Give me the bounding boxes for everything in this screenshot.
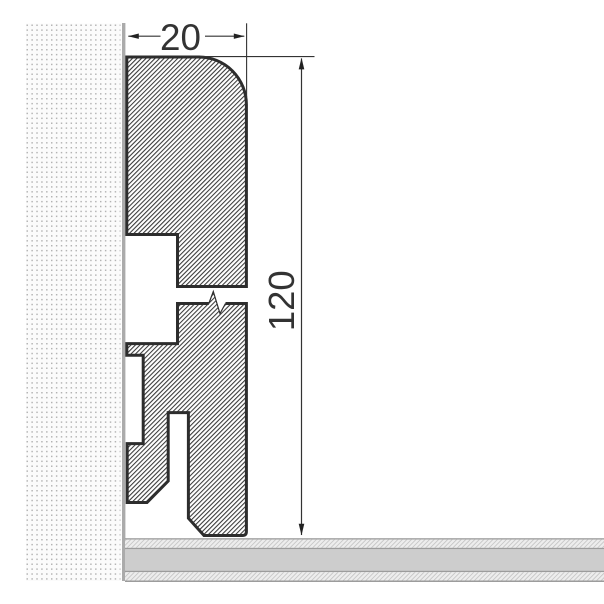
svg-text:20: 20 bbox=[160, 17, 201, 58]
svg-text:120: 120 bbox=[261, 270, 302, 331]
